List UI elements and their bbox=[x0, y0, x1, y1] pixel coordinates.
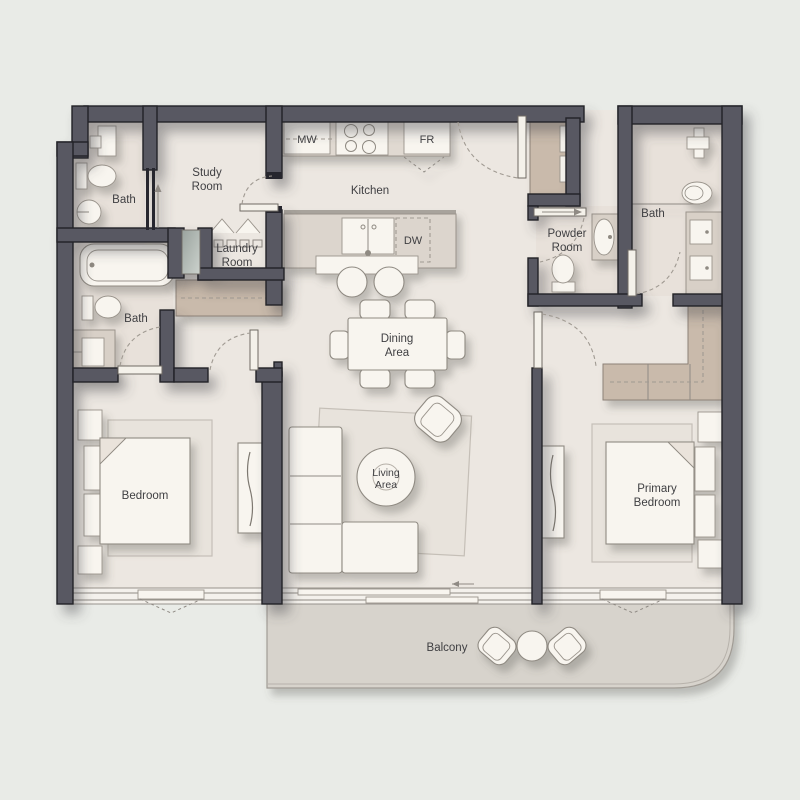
toilet bbox=[88, 165, 116, 187]
dining-chair bbox=[330, 331, 349, 359]
pillow bbox=[695, 447, 715, 491]
room-label-bath-left: Bath bbox=[124, 313, 148, 325]
room-label-living-2: Area bbox=[375, 479, 397, 491]
room-label-laundry-2: Room bbox=[222, 257, 253, 269]
entry-door-leaf bbox=[518, 116, 526, 178]
appliance-label-mw: MW bbox=[297, 134, 317, 146]
dining-chair bbox=[360, 300, 390, 319]
room-label-bedroom: Bedroom bbox=[122, 490, 169, 502]
room-label-study-1: Study bbox=[192, 167, 222, 179]
toilet bbox=[552, 255, 574, 283]
sliding-door-panel bbox=[298, 589, 450, 595]
island-table bbox=[316, 256, 418, 274]
room-label-powder-1: Powder bbox=[548, 228, 587, 240]
sofa bbox=[289, 427, 342, 573]
floor-plan: Bath Study Room Kitchen Laundry Room Bat… bbox=[0, 0, 800, 800]
dining-chair bbox=[405, 300, 435, 319]
dining-chair bbox=[360, 369, 390, 388]
room-label-balcony: Balcony bbox=[427, 642, 468, 654]
appliance-label-fr: FR bbox=[420, 134, 435, 146]
bedroom-door-leaf bbox=[250, 330, 258, 370]
toilet bbox=[682, 182, 712, 204]
room-label-powder-2: Room bbox=[552, 242, 583, 254]
room-label-dining-2: Area bbox=[385, 347, 410, 359]
bath-left-door-leaf bbox=[118, 366, 162, 374]
primary-door-leaf bbox=[534, 312, 542, 368]
room-label-bath-right: Bath bbox=[641, 208, 665, 220]
sliding-door-panel bbox=[366, 597, 478, 603]
door-jamb bbox=[266, 172, 282, 179]
room-label-living-1: Living bbox=[372, 467, 400, 479]
toilet-tank bbox=[552, 282, 575, 292]
appliance-label-dw: DW bbox=[404, 235, 423, 247]
nightstand bbox=[78, 410, 102, 440]
glass-panel bbox=[182, 230, 200, 274]
dining-chair bbox=[405, 369, 435, 388]
bedroom-casement bbox=[138, 590, 204, 599]
nightstand bbox=[78, 546, 102, 574]
toilet-tank bbox=[82, 296, 93, 320]
pillow bbox=[695, 495, 715, 537]
toilet bbox=[95, 296, 121, 318]
room-label-laundry-1: Laundry bbox=[216, 243, 258, 255]
stove bbox=[336, 121, 388, 155]
room-label-dining-1: Dining bbox=[381, 333, 414, 345]
room-label-study-2: Room bbox=[192, 181, 223, 193]
pocket-door bbox=[146, 168, 149, 230]
room-label-primary-2: Bedroom bbox=[634, 497, 681, 509]
toilet-tank bbox=[76, 163, 87, 189]
bar-stool bbox=[337, 267, 367, 297]
sink bbox=[82, 338, 104, 366]
bath-right-door-leaf bbox=[628, 250, 636, 296]
room-label-bath-top-left: Bath bbox=[112, 194, 136, 206]
bar-stool bbox=[374, 267, 404, 297]
pocket-door bbox=[152, 168, 155, 230]
room-label-kitchen: Kitchen bbox=[351, 185, 389, 197]
balcony-table bbox=[517, 631, 547, 661]
nightstand bbox=[698, 540, 722, 568]
study-door-leaf bbox=[240, 204, 278, 211]
sofa-chaise bbox=[342, 522, 418, 573]
primary-casement bbox=[600, 590, 666, 599]
nightstand bbox=[698, 412, 722, 442]
room-label-primary-1: Primary bbox=[637, 483, 677, 495]
dining-chair bbox=[446, 331, 465, 359]
